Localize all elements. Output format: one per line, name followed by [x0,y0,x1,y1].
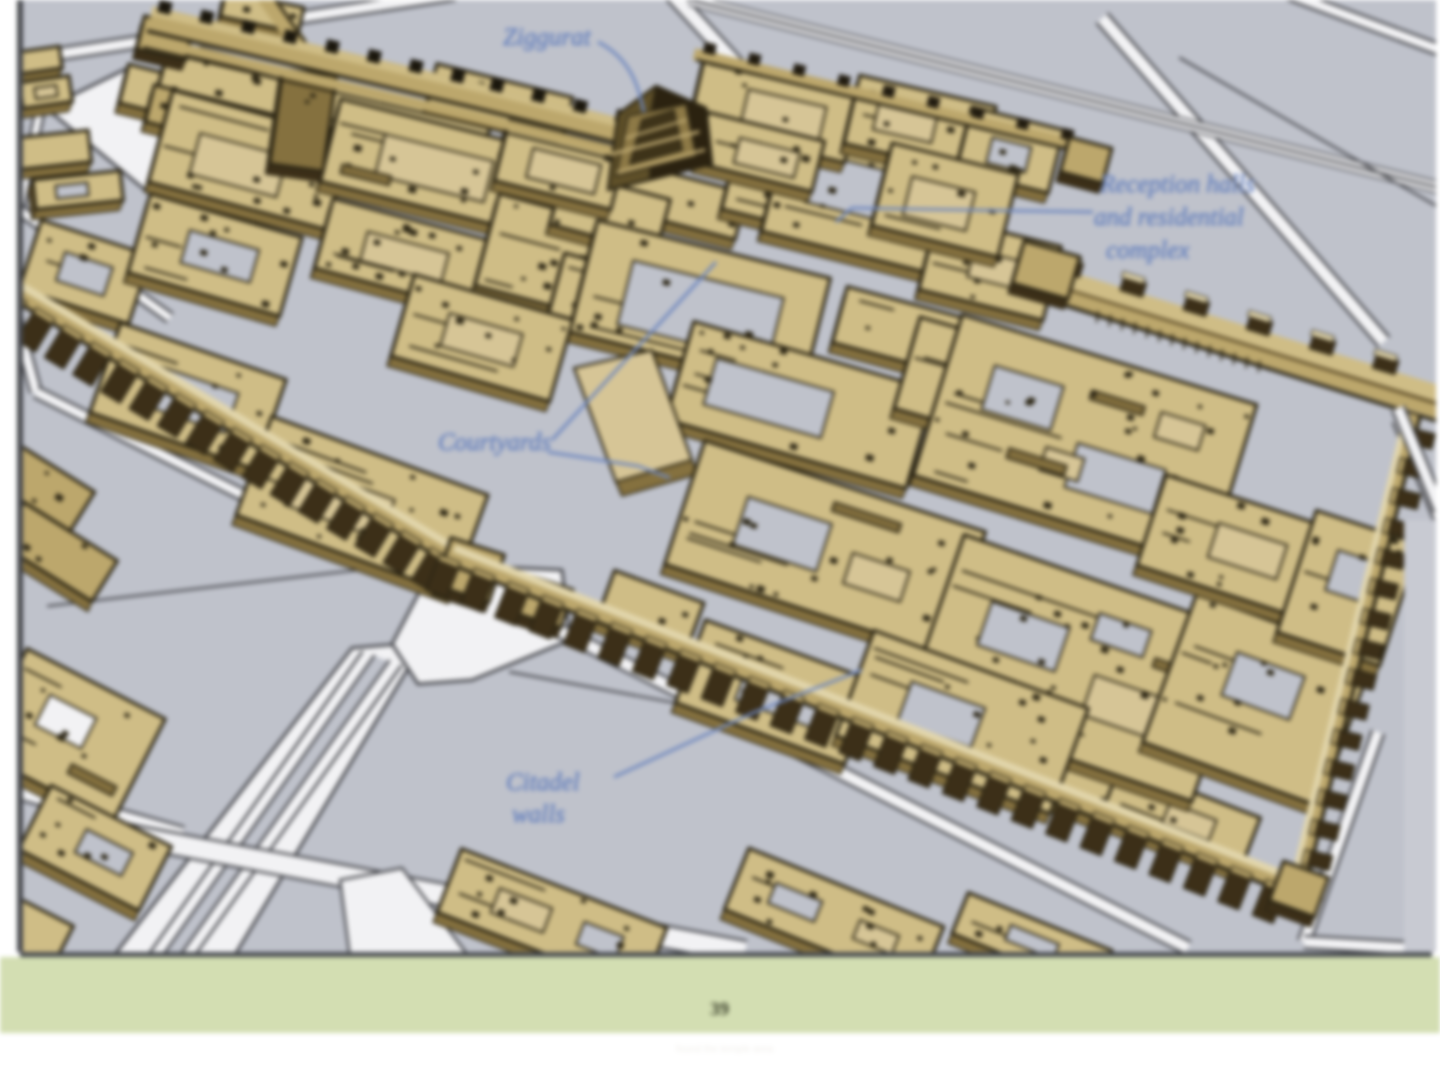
svg-text:walls: walls [512,801,565,828]
svg-text:complex: complex [1106,237,1189,264]
svg-text:39: 39 [710,999,729,1020]
svg-text:Reception halls: Reception halls [1099,171,1255,198]
svg-text:and residential: and residential [1094,204,1244,231]
svg-text:Citadel: Citadel [506,769,580,796]
svg-text:Ziggurat: Ziggurat [503,24,592,51]
svg-text:found the temple area: found the temple area [676,1044,774,1055]
svg-text:Courtyards: Courtyards [438,429,551,456]
